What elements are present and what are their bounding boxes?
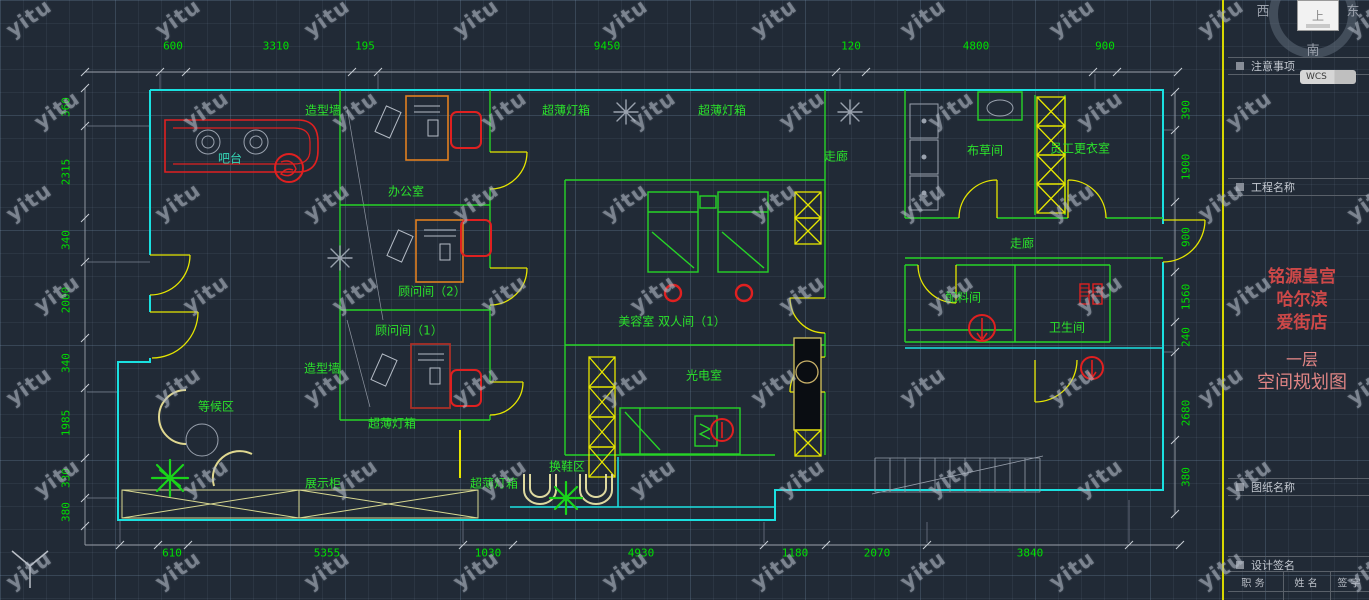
dim-label: 3840 — [1017, 547, 1044, 560]
table-divider — [1283, 571, 1284, 600]
dim-label: 340 — [60, 230, 73, 250]
room-label: 超薄灯箱 — [698, 102, 746, 119]
room-label: 卫生间 — [1049, 319, 1085, 336]
dim-label: 5355 — [314, 547, 341, 560]
viewcube-west[interactable]: 西 — [1256, 1, 1269, 20]
section-sheet-name[interactable]: 图纸名称 — [1236, 479, 1366, 495]
divider — [1228, 195, 1369, 196]
dim-label: 1985 — [60, 410, 73, 437]
dim-label: 1560 — [1180, 284, 1193, 311]
dim-label: 600 — [163, 40, 183, 53]
dim-label: 2680 — [1180, 400, 1193, 427]
cad-viewport[interactable]: 造型墙 吧台 办公室 超薄灯箱 超薄灯箱 走廊 布草间 员工更衣室 顾问间（2）… — [0, 0, 1369, 600]
dim-label: 120 — [841, 40, 861, 53]
dim-label: 2315 — [60, 159, 73, 186]
watermark-text: yitu — [1222, 86, 1277, 134]
dim-label: 380 — [1180, 467, 1193, 487]
divider — [1228, 591, 1369, 592]
project-title-block: 铭源皇宫 哈尔滨 爱街店 一层 空间规划图 — [1232, 266, 1369, 395]
table-divider — [1330, 571, 1331, 600]
section-label: 工程名称 — [1251, 179, 1295, 195]
room-label: 光电室 — [686, 367, 722, 384]
dim-label: 4800 — [963, 40, 990, 53]
dim-label: 2000 — [60, 287, 73, 314]
project-title-line: 铭源皇宫 — [1232, 266, 1369, 289]
section-label: 设计签名 — [1251, 557, 1295, 573]
viewcube-face-detail — [1306, 24, 1330, 28]
room-label: 超薄灯箱 — [368, 415, 416, 432]
viewcube-south[interactable]: 南 — [1306, 40, 1319, 59]
section-icon — [1236, 561, 1244, 569]
room-label: 员工更衣室 — [1050, 140, 1110, 157]
sign-table-col-signature: 签 字 — [1337, 575, 1360, 590]
dim-label: 1900 — [1180, 154, 1193, 181]
dimension-lines — [81, 68, 1184, 549]
dim-label: 900 — [1180, 227, 1193, 247]
room-label: 超薄灯箱 — [470, 475, 518, 492]
dim-label: 1180 — [782, 547, 809, 560]
section-label: 图纸名称 — [1251, 479, 1295, 495]
section-design-signature[interactable]: 设计签名 — [1236, 557, 1366, 573]
room-label: 造型墙 — [305, 102, 341, 119]
dim-label: 390 — [1180, 100, 1193, 120]
room-label: 展示柜 — [305, 475, 341, 492]
viewcube-top-face[interactable]: 上 — [1297, 0, 1339, 31]
room-label: 办公室 — [388, 183, 424, 200]
viewcube-top-label: 上 — [1312, 7, 1324, 24]
section-label: 注意事项 — [1251, 58, 1295, 74]
room-label: 超薄灯箱 — [542, 102, 590, 119]
dim-label: 360 — [60, 97, 73, 117]
divider — [1228, 495, 1369, 496]
section-icon — [1236, 183, 1244, 191]
dim-label: 610 — [162, 547, 182, 560]
titleblock-border-line — [1222, 0, 1224, 600]
floor-plan — [0, 0, 1222, 600]
room-label: 等候区 — [198, 398, 234, 415]
room-label: 造型墙 — [304, 360, 340, 377]
room-label: 走廊 — [1010, 235, 1034, 252]
section-project-name[interactable]: 工程名称 — [1236, 179, 1366, 195]
dim-label: 240 — [1180, 327, 1193, 347]
sheet-subtitle-line: 空间规划图 — [1232, 371, 1369, 395]
sign-table-col-name: 姓 名 — [1294, 575, 1317, 590]
dim-label: 2070 — [864, 547, 891, 560]
gray-details — [12, 100, 1043, 588]
dim-label: 340 — [60, 353, 73, 373]
room-label: 顾问间（1） — [375, 322, 443, 339]
room-label: 配料间 — [945, 289, 981, 306]
desk-units — [371, 96, 463, 408]
dim-label: 1030 — [475, 547, 502, 560]
dim-label: 3310 — [263, 40, 290, 53]
room-label: 走廊 — [824, 148, 848, 165]
section-icon — [1236, 483, 1244, 491]
wcs-button[interactable]: WCS — [1300, 70, 1356, 84]
room-label: 美容室 双人间（1） — [618, 313, 725, 330]
dim-label: 9450 — [594, 40, 621, 53]
sheet-subtitle-line: 一层 — [1232, 349, 1369, 371]
dim-label: 4930 — [628, 547, 655, 560]
sign-table-col-duty: 职 务 — [1241, 575, 1264, 590]
dim-label: 900 — [1095, 40, 1115, 53]
dim-label: 195 — [355, 40, 375, 53]
project-title-line: 爱街店 — [1232, 312, 1369, 335]
red-accents — [165, 112, 1103, 441]
dim-label: 380 — [60, 502, 73, 522]
room-label: 顾问间（2） — [398, 283, 466, 300]
room-label: 换鞋区 — [549, 458, 585, 475]
section-icon — [1236, 62, 1244, 70]
dim-label: 330 — [60, 468, 73, 488]
project-title-line: 哈尔滨 — [1232, 289, 1369, 312]
room-label: 吧台 — [218, 150, 242, 167]
viewcube-east[interactable]: 东 — [1346, 1, 1359, 20]
room-label: 布草间 — [967, 142, 1003, 159]
